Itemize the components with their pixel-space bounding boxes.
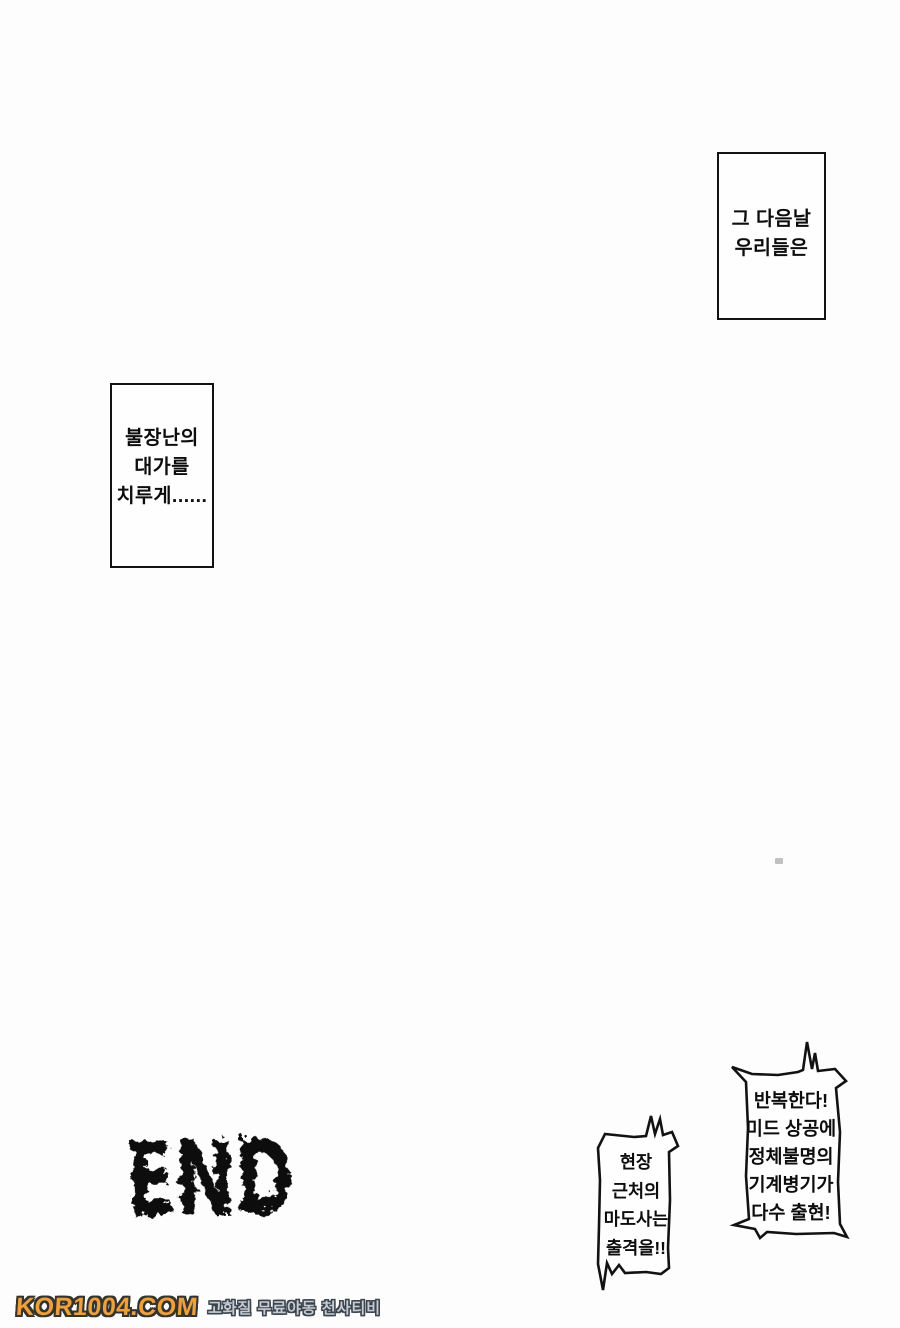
- end-mark: END: [104, 1112, 314, 1242]
- caption-line: 대가를: [134, 453, 189, 482]
- caption-line: 치루게......: [117, 482, 208, 511]
- bubble-line: 마도사는: [599, 1205, 673, 1234]
- manga-page: 그 다음날 우리들은 불장난의 대가를 치루게...... END 현장 근처의…: [0, 0, 900, 1328]
- bubble-line: 기계병기가: [743, 1171, 839, 1199]
- bubble-line: 다수 출현!: [743, 1199, 839, 1227]
- caption-line: 불장난의: [125, 424, 199, 453]
- end-text: END: [125, 1118, 296, 1241]
- caption-line: 그 다음날: [732, 205, 812, 234]
- bubble-alert-text: 반복한다! 미드 상공에 정체불명의 기계병기가 다수 출현!: [743, 1087, 839, 1227]
- bubble-line: 출격을!!: [599, 1234, 673, 1263]
- caption-box-next-day: 그 다음날 우리들은: [717, 152, 826, 320]
- caption-box-price: 불장난의 대가를 치루게......: [110, 383, 214, 568]
- scan-speck: [775, 858, 783, 864]
- watermark-site-logo: KOR1004.COM: [15, 1293, 199, 1322]
- end-mark-svg: END: [104, 1112, 314, 1242]
- bubble-line: 현장: [599, 1148, 673, 1177]
- bubble-line: 정체불명의: [743, 1143, 839, 1171]
- bubble-line: 반복한다!: [743, 1087, 839, 1115]
- bubble-dispatch-text: 현장 근처의 마도사는 출격을!!: [599, 1148, 673, 1262]
- bubble-line: 근처의: [599, 1177, 673, 1206]
- caption-line: 우리들은: [735, 234, 809, 263]
- watermark-tagline: 고화질 무료야동 천사티비: [208, 1297, 381, 1318]
- watermark: KOR1004.COM 고화질 무료야동 천사티비: [16, 1293, 381, 1322]
- bubble-line: 미드 상공에: [743, 1115, 839, 1143]
